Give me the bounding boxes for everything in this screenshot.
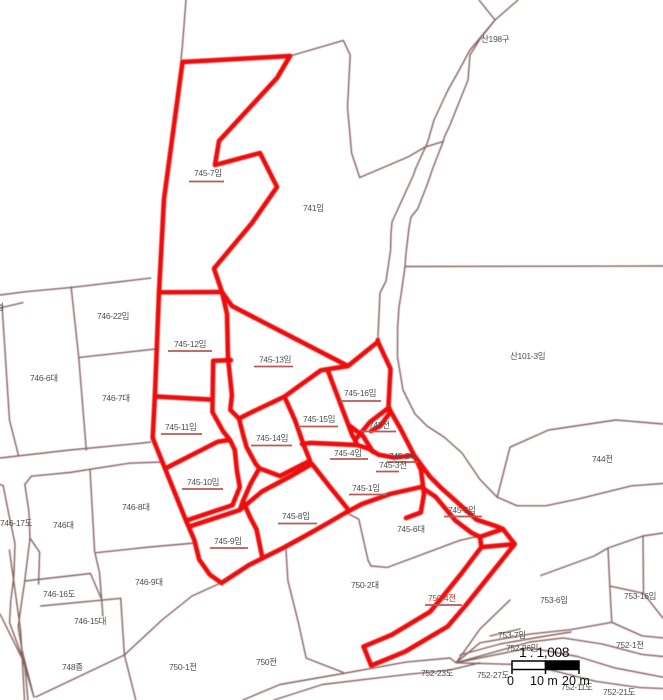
svg-text:1 : 1,008: 1 : 1,008 <box>519 644 570 660</box>
svg-text:752-1전: 752-1전 <box>616 640 644 650</box>
svg-text:745-4임: 745-4임 <box>334 448 362 458</box>
svg-text:산101-3임: 산101-3임 <box>510 351 545 361</box>
svg-text:745-13임: 745-13임 <box>259 355 291 365</box>
svg-text:745-6대: 745-6대 <box>397 524 425 534</box>
svg-text:745-14임: 745-14임 <box>256 433 288 443</box>
svg-text:750-1전: 750-1전 <box>169 662 197 672</box>
svg-text:746-6대: 746-6대 <box>30 373 58 383</box>
svg-text:745-1임: 745-1임 <box>352 483 380 493</box>
svg-text:745-9임: 745-9임 <box>214 536 242 546</box>
svg-text:745-5임: 745-5임 <box>448 505 476 515</box>
svg-text:20 m: 20 m <box>562 674 590 688</box>
svg-text:753-7임: 753-7임 <box>498 630 526 640</box>
svg-text:746대: 746대 <box>53 520 74 530</box>
svg-text:748종: 748종 <box>62 662 83 672</box>
svg-text:746-22임: 746-22임 <box>97 311 129 321</box>
svg-text:745-3전: 745-3전 <box>379 460 407 470</box>
svg-text:746-8대: 746-8대 <box>122 502 150 512</box>
svg-text:산198구: 산198구 <box>481 34 510 44</box>
svg-text:752-27도: 752-27도 <box>477 670 510 680</box>
svg-text:746-15대: 746-15대 <box>74 616 106 626</box>
svg-text:745-12임: 745-12임 <box>174 339 206 349</box>
svg-text:746-17도: 746-17도 <box>0 518 33 528</box>
svg-text:745-7임: 745-7임 <box>194 168 222 178</box>
svg-text:10 m: 10 m <box>530 674 558 688</box>
svg-text:750전: 750전 <box>256 657 277 667</box>
svg-text:745-10임: 745-10임 <box>187 477 219 487</box>
svg-text:745전: 745전 <box>369 420 390 430</box>
svg-text:744전: 744전 <box>592 454 613 464</box>
svg-text:0: 0 <box>507 674 514 688</box>
svg-text:746-7대: 746-7대 <box>102 393 130 403</box>
svg-text:746-9대: 746-9대 <box>135 577 163 587</box>
svg-text:746-16도: 746-16도 <box>43 589 76 599</box>
svg-text:745-8임: 745-8임 <box>282 511 310 521</box>
svg-text:752-23도: 752-23도 <box>421 668 454 678</box>
svg-text:745-15임: 745-15임 <box>303 414 335 424</box>
svg-text:752-21도: 752-21도 <box>603 687 636 697</box>
svg-text:750-2대: 750-2대 <box>351 580 379 590</box>
svg-text:741임: 741임 <box>303 203 324 213</box>
svg-text:745-16임: 745-16임 <box>344 388 376 398</box>
svg-text:753-16임: 753-16임 <box>624 591 656 601</box>
svg-text:750-4전: 750-4전 <box>428 593 456 603</box>
svg-text:임: 임 <box>0 302 4 312</box>
svg-text:753-6임: 753-6임 <box>540 595 568 605</box>
svg-text:745-11임: 745-11임 <box>165 422 197 432</box>
